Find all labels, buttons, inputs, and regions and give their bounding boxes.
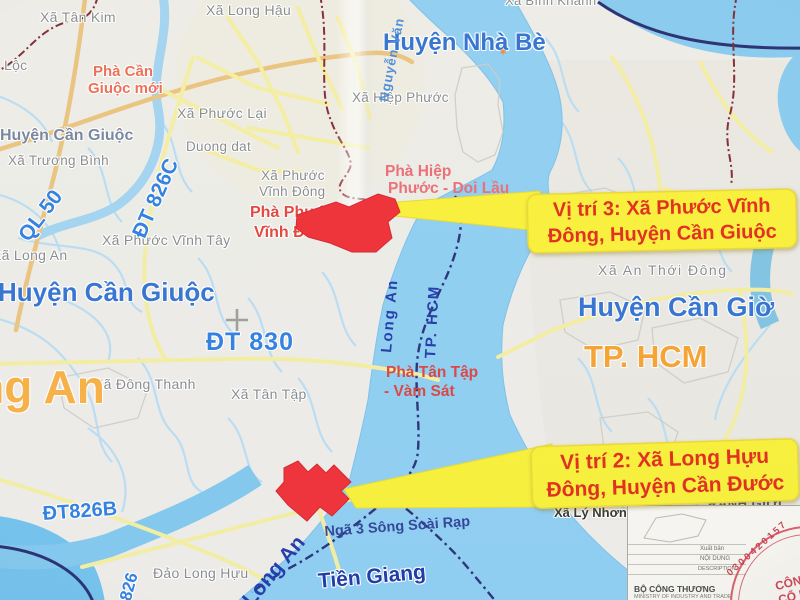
inset-sketch: [636, 510, 726, 546]
tb-rule: [628, 554, 746, 555]
site3-highlight-area: [296, 194, 400, 252]
scanned-map-photo: Xã Tân Kim Xã Long Hậu Xã Bình Khánh Lộc…: [0, 0, 800, 600]
callout-site2: Vị trí 2: Xã Long Hựu Đông, Huyện Cần Đư…: [530, 438, 800, 509]
callout-site3-line2: Đông, Huyện Cần Giuộc: [529, 218, 795, 250]
tb-ministry: BỘ CÔNG THƯƠNG: [634, 584, 715, 594]
tb-rule: [628, 564, 746, 565]
tb-rule: [628, 544, 746, 545]
tb-ministry-en: MINISTRY OF INDUSTRY AND TRADE: [634, 594, 732, 600]
tb-row2: NỘI DUNG: [700, 556, 730, 562]
tb-row1: Xuất bản: [700, 546, 724, 552]
site2-highlight-area: [276, 461, 351, 521]
callout-site3: Vị trí 3: Xã Phước Vĩnh Đông, Huyện Cần …: [526, 188, 797, 254]
